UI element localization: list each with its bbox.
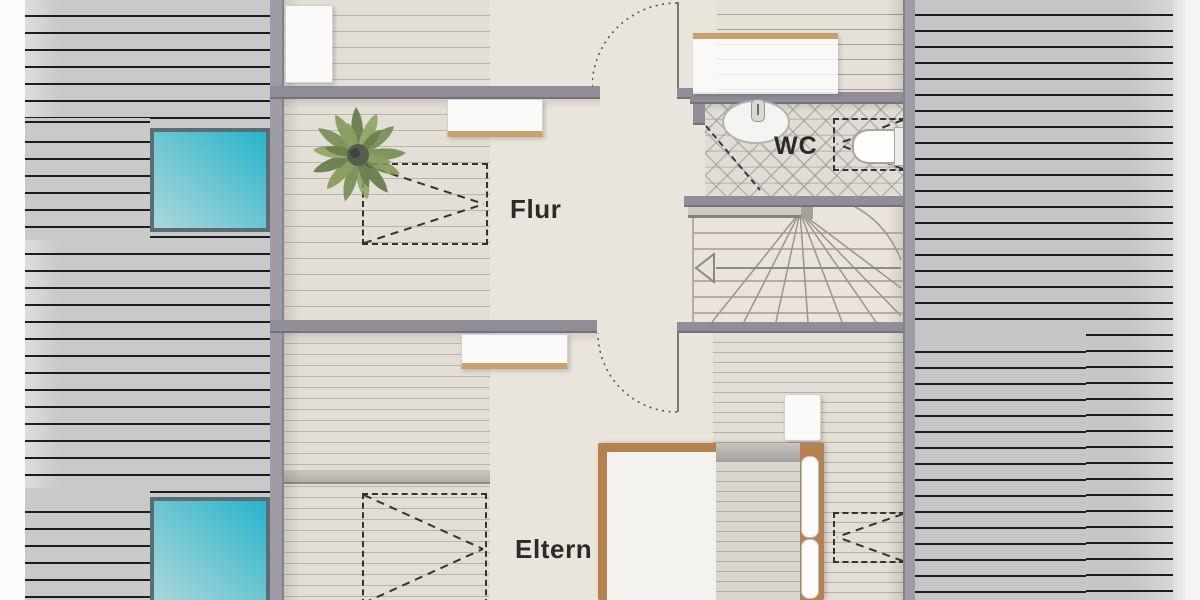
- wardrobe-top-left: [285, 5, 333, 83]
- roof-window-marker-eltern-right: [833, 512, 905, 563]
- sideboard-eltern: [461, 334, 568, 369]
- right-roof-shadow: [1173, 0, 1187, 600]
- roof-purlin-beam: [284, 470, 490, 484]
- toilet-icon: [852, 129, 898, 164]
- wall-top-divider: [270, 86, 600, 99]
- door-swing-icon-eltern: [592, 327, 684, 417]
- right-roof: [915, 0, 1173, 600]
- faucet-slot: [757, 104, 759, 115]
- room-label-flur: Flur: [510, 194, 562, 225]
- bed-icon: [598, 443, 824, 600]
- bed-pillow-top: [801, 456, 819, 538]
- sideboard-flur: [447, 99, 543, 137]
- nightstand: [784, 394, 821, 441]
- left-roof-offset-panel-bottom: [25, 488, 150, 600]
- right-roof-offset-panel: [915, 330, 1086, 600]
- floor-plan: Flur WC Eltern: [0, 0, 1200, 600]
- direction-arrow-icon: [696, 254, 714, 282]
- left-roof-offset-panel-top: [25, 118, 150, 240]
- left-gutter: [0, 0, 25, 600]
- roof-window-marker-eltern-left: [362, 493, 487, 600]
- wall-mid-divider: [270, 320, 597, 333]
- bed-blanket: [716, 452, 800, 600]
- wall-stairs-bottom: [677, 322, 915, 333]
- bed-blanket-roll: [716, 443, 800, 462]
- skylight-window-bottom: [150, 497, 270, 600]
- bed-pillow-bottom: [801, 539, 819, 599]
- skylight-window-top: [150, 128, 270, 232]
- door-swing-icon-top: [592, 0, 682, 92]
- plant-icon: [306, 102, 410, 208]
- bed-mattress: [607, 452, 716, 600]
- dresser-top-right: [693, 33, 838, 94]
- right-gutter: [1173, 0, 1200, 600]
- room-label-eltern: Eltern: [515, 534, 592, 565]
- door-swing-icon-wc: [700, 120, 770, 200]
- room-label-wc: WC: [774, 132, 818, 161]
- faucet-icon: [751, 99, 765, 122]
- exterior-wall-right: [903, 0, 915, 600]
